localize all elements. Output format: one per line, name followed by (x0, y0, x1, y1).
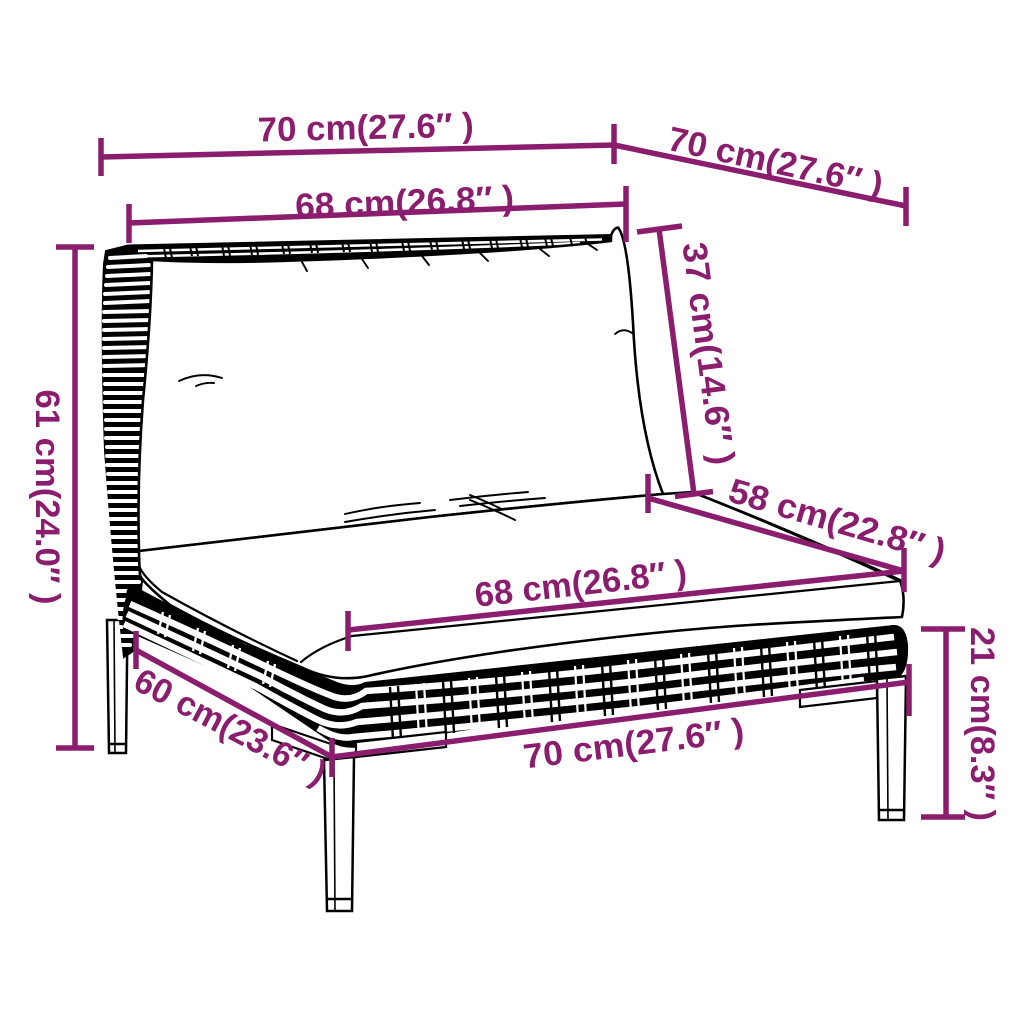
svg-text:61 cm(24.0″ ): 61 cm(24.0″ ) (28, 390, 66, 605)
svg-text:21 cm(8.3″ ): 21 cm(8.3″ ) (963, 627, 1001, 821)
svg-text:70 cm(27.6″ ): 70 cm(27.6″ ) (257, 107, 474, 150)
